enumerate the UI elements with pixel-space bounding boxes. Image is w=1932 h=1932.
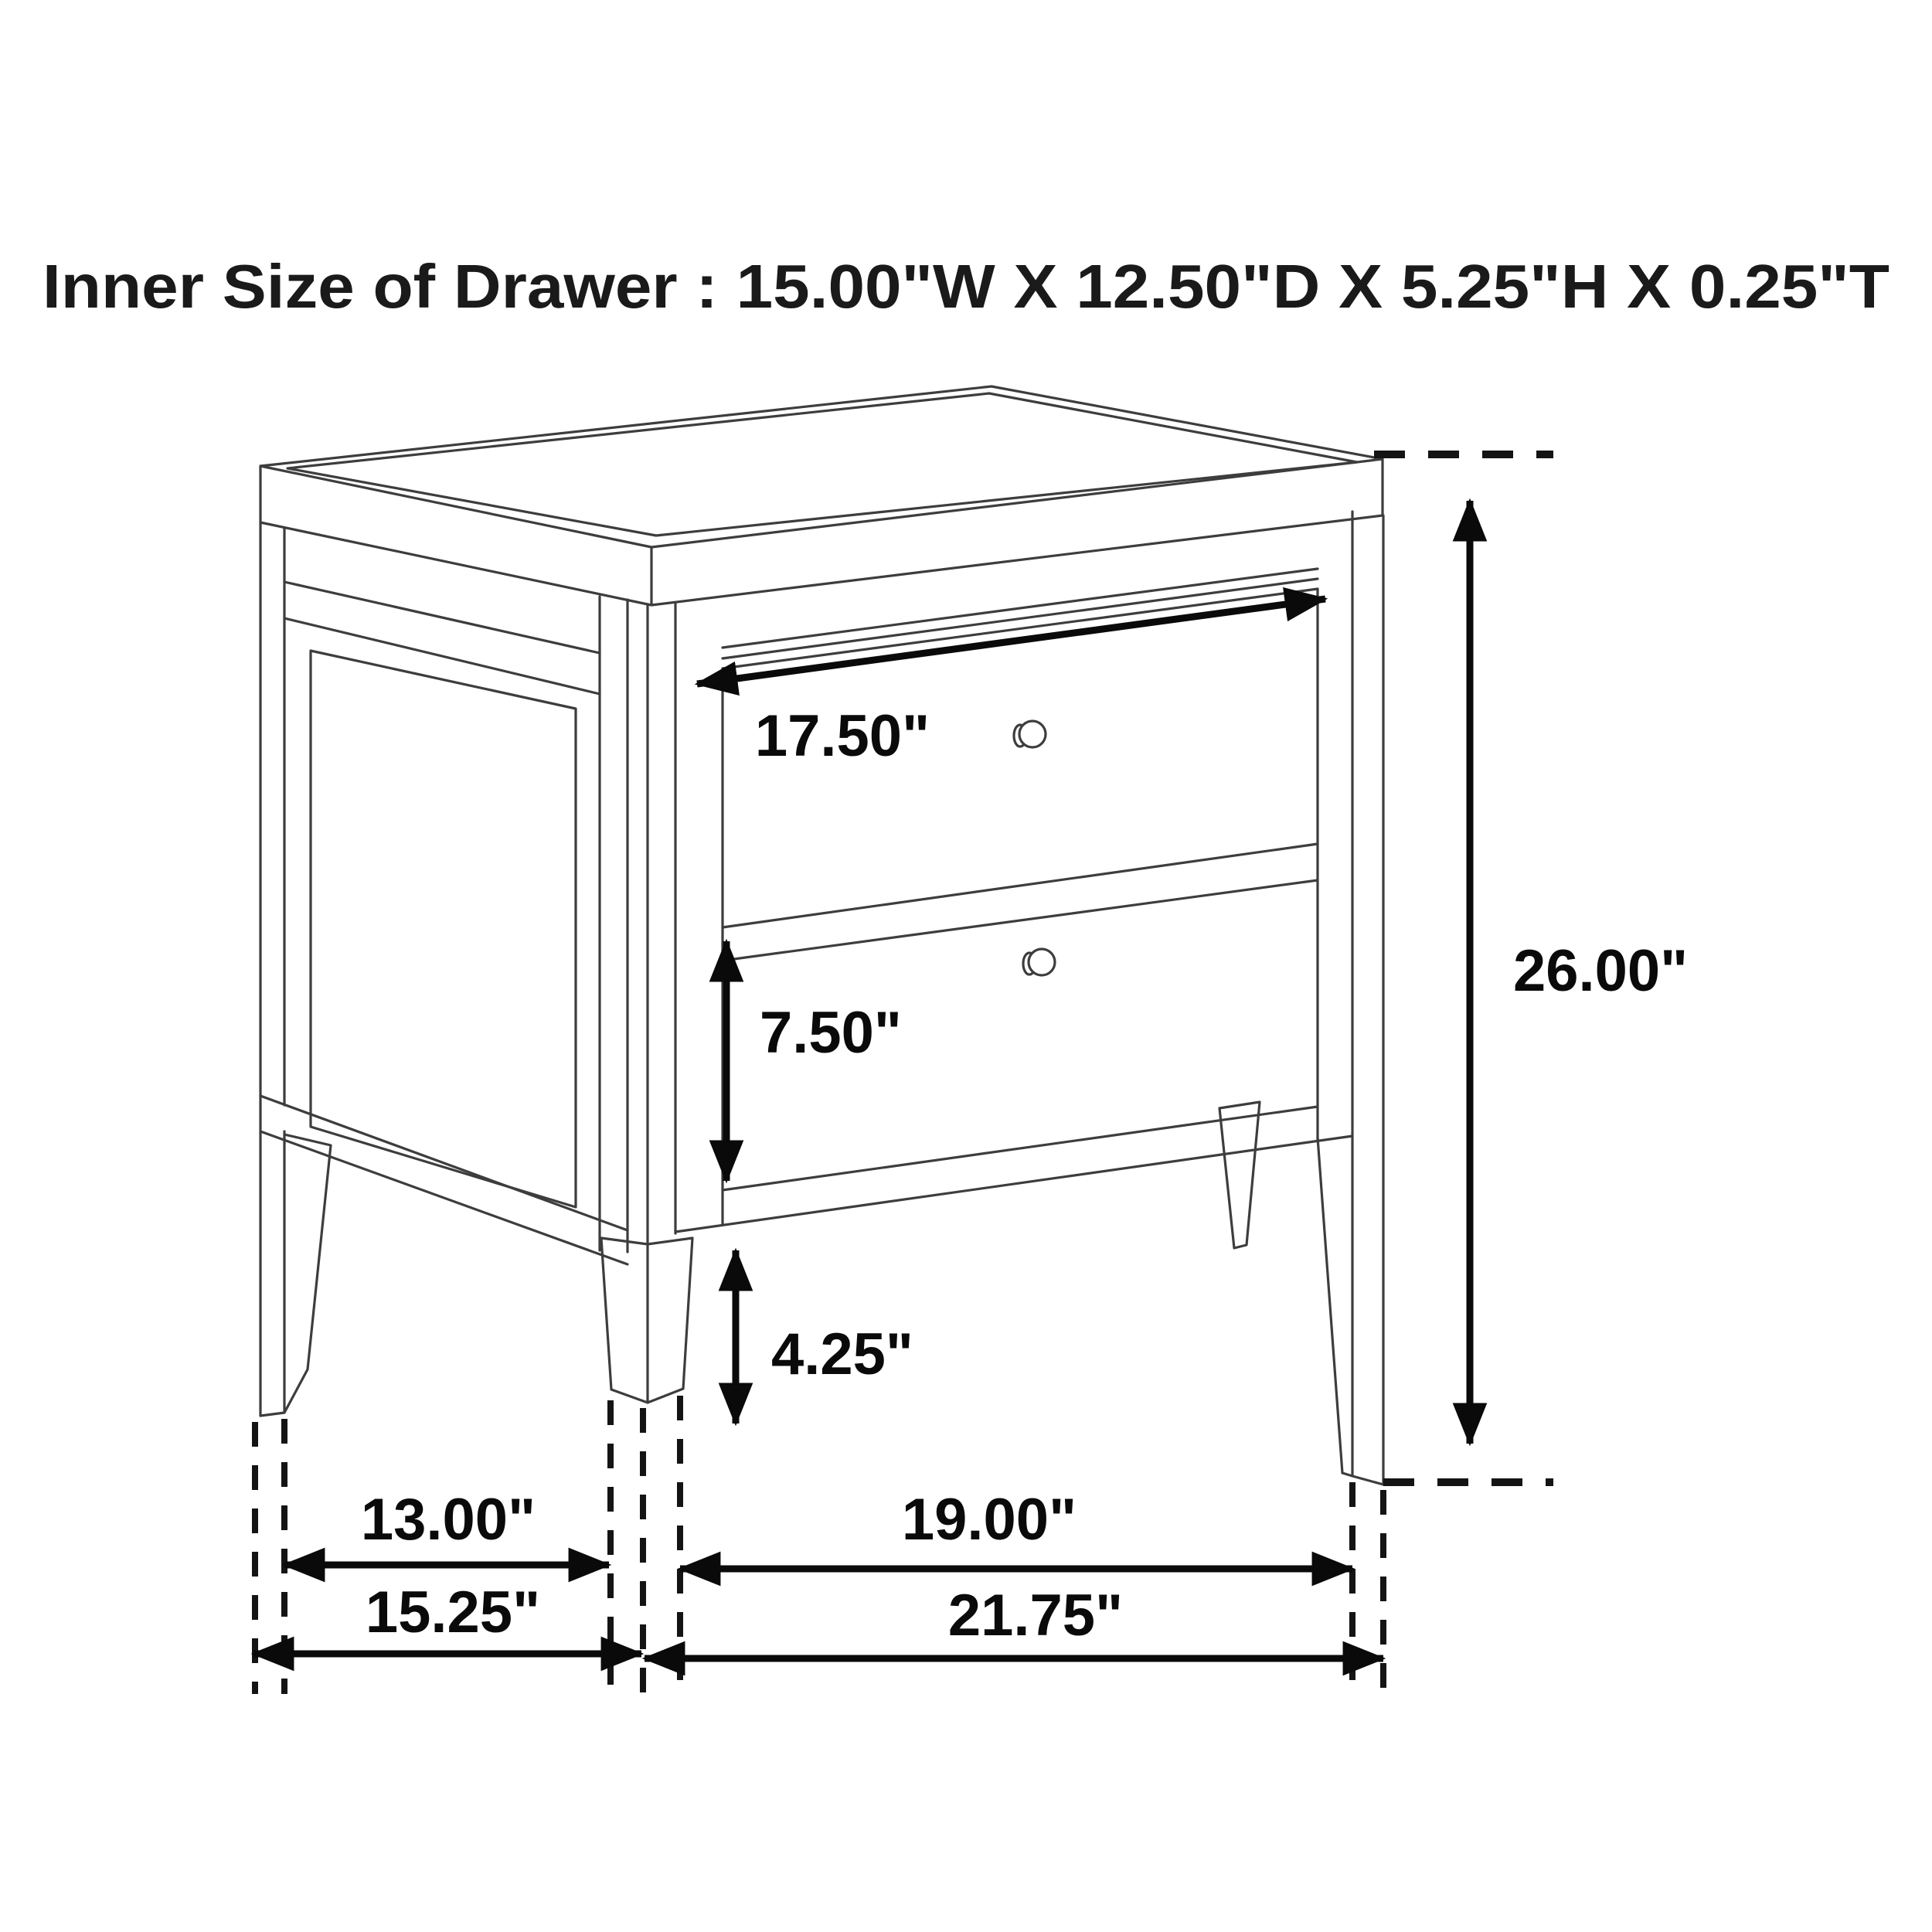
tabletop <box>260 386 1383 605</box>
label-overall-height: 26.00" <box>1513 938 1688 1004</box>
dim-arrow-drawer-width <box>697 599 1325 684</box>
drawer-knobs <box>1014 721 1055 975</box>
front-right-leg-extensions <box>1352 1482 1383 1697</box>
nightstand-drawing <box>260 386 1383 1485</box>
label-overall-depth: 15.25" <box>366 1580 540 1645</box>
label-drawer-height: 7.50" <box>760 1000 902 1066</box>
label-floor-clearance: 4.25" <box>771 1321 913 1387</box>
diagram-canvas: Inner Size of Drawer : 15.00"W X 12.50"D… <box>0 0 1932 1932</box>
dimension-arrows <box>253 501 1470 1658</box>
drawer-front-face <box>675 512 1383 1233</box>
label-front-inner: 19.00" <box>902 1487 1077 1553</box>
nightstand-dimension-diagram: Inner Size of Drawer : 15.00"W X 12.50"D… <box>0 0 1932 1932</box>
label-overall-width: 21.75" <box>948 1583 1123 1648</box>
front-left-leg <box>601 1238 692 1403</box>
diagram-title: Inner Size of Drawer : 15.00"W X 12.50"D… <box>43 252 1889 321</box>
front-left-leg-extensions <box>611 1396 680 1694</box>
labels: Inner Size of Drawer : 15.00"W X 12.50"D… <box>43 252 1889 1648</box>
back-right-leg <box>1219 1102 1260 1248</box>
back-left-leg <box>260 522 331 1416</box>
side-panel <box>260 528 648 1264</box>
front-right-leg <box>1318 1127 1383 1485</box>
bottom-drawer-knob-icon <box>1023 949 1055 975</box>
label-drawer-width: 17.50" <box>755 703 930 769</box>
top-drawer-knob-icon <box>1014 721 1046 747</box>
label-side-inner: 13.00" <box>361 1487 536 1553</box>
